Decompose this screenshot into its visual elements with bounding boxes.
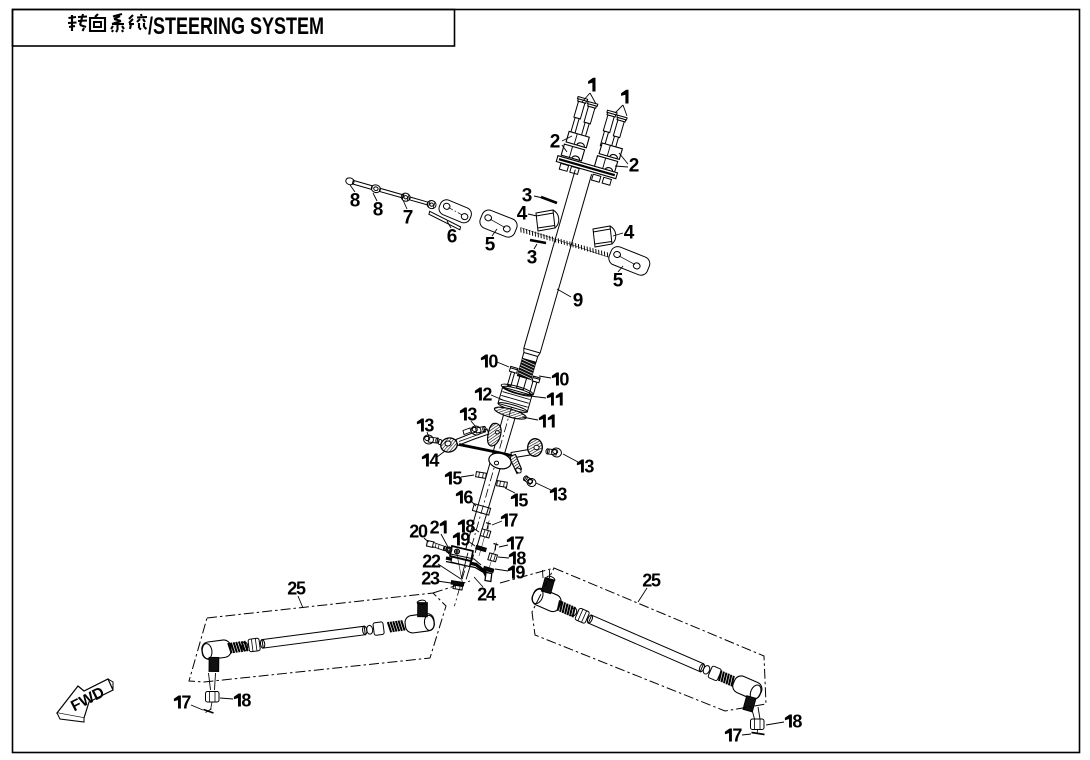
svg-text:2: 2 <box>629 156 640 177</box>
svg-text:25: 25 <box>642 571 661 591</box>
svg-text:8: 8 <box>373 200 384 221</box>
svg-text:6: 6 <box>447 227 458 248</box>
svg-text:9: 9 <box>515 563 525 583</box>
svg-text:23: 23 <box>421 569 440 589</box>
svg-text:3: 3 <box>467 405 477 425</box>
svg-text:0: 0 <box>488 352 498 372</box>
svg-text:25: 25 <box>287 579 306 599</box>
svg-text:24: 24 <box>477 585 496 605</box>
svg-text:7: 7 <box>508 511 518 531</box>
svg-text:3: 3 <box>584 457 594 477</box>
svg-text:3: 3 <box>527 248 538 269</box>
svg-text:7: 7 <box>732 726 742 746</box>
svg-text:4: 4 <box>517 204 528 225</box>
svg-text:2: 2 <box>550 132 561 153</box>
svg-text:/STEERING SYSTEM: /STEERING SYSTEM <box>148 13 324 40</box>
svg-text:2: 2 <box>430 518 440 538</box>
svg-text:7: 7 <box>181 693 191 713</box>
svg-text:9: 9 <box>573 291 584 312</box>
svg-text:4: 4 <box>624 223 635 244</box>
svg-text:5: 5 <box>518 491 528 511</box>
svg-text:2: 2 <box>482 385 492 405</box>
svg-text:4: 4 <box>429 451 439 471</box>
svg-text:3: 3 <box>557 485 567 505</box>
svg-text:3: 3 <box>424 416 434 436</box>
svg-text:5: 5 <box>613 271 624 292</box>
svg-text:5: 5 <box>452 469 462 489</box>
svg-text:8: 8 <box>241 691 251 711</box>
svg-text:6: 6 <box>463 488 473 508</box>
svg-text:8: 8 <box>792 712 802 732</box>
svg-text:8: 8 <box>350 191 361 212</box>
svg-text:9: 9 <box>460 530 470 550</box>
svg-text:0: 0 <box>559 370 569 390</box>
svg-text:7: 7 <box>403 208 414 229</box>
svg-text:5: 5 <box>485 235 496 256</box>
